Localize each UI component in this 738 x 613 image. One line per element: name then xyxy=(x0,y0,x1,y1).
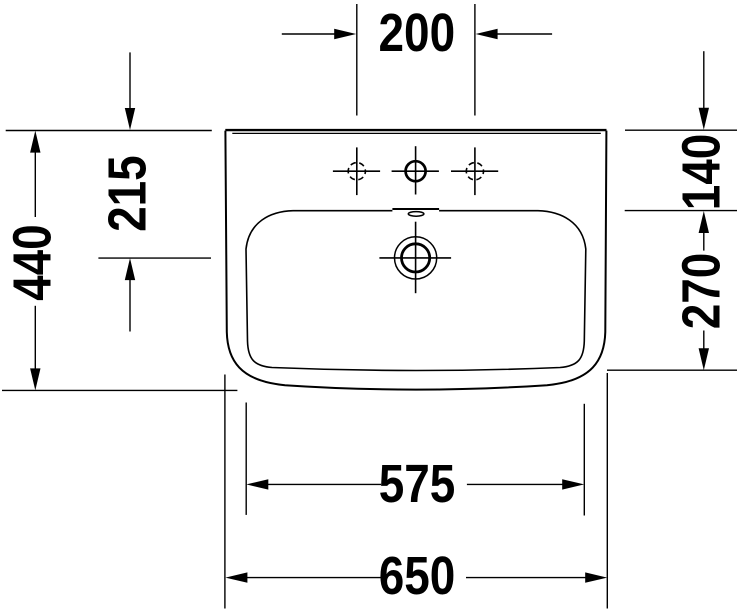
svg-text:440: 440 xyxy=(2,224,62,301)
svg-text:270: 270 xyxy=(671,253,731,330)
svg-text:215: 215 xyxy=(97,155,157,232)
svg-text:650: 650 xyxy=(379,545,456,605)
svg-text:200: 200 xyxy=(379,3,456,63)
svg-text:140: 140 xyxy=(671,134,731,211)
svg-text:575: 575 xyxy=(379,454,456,514)
